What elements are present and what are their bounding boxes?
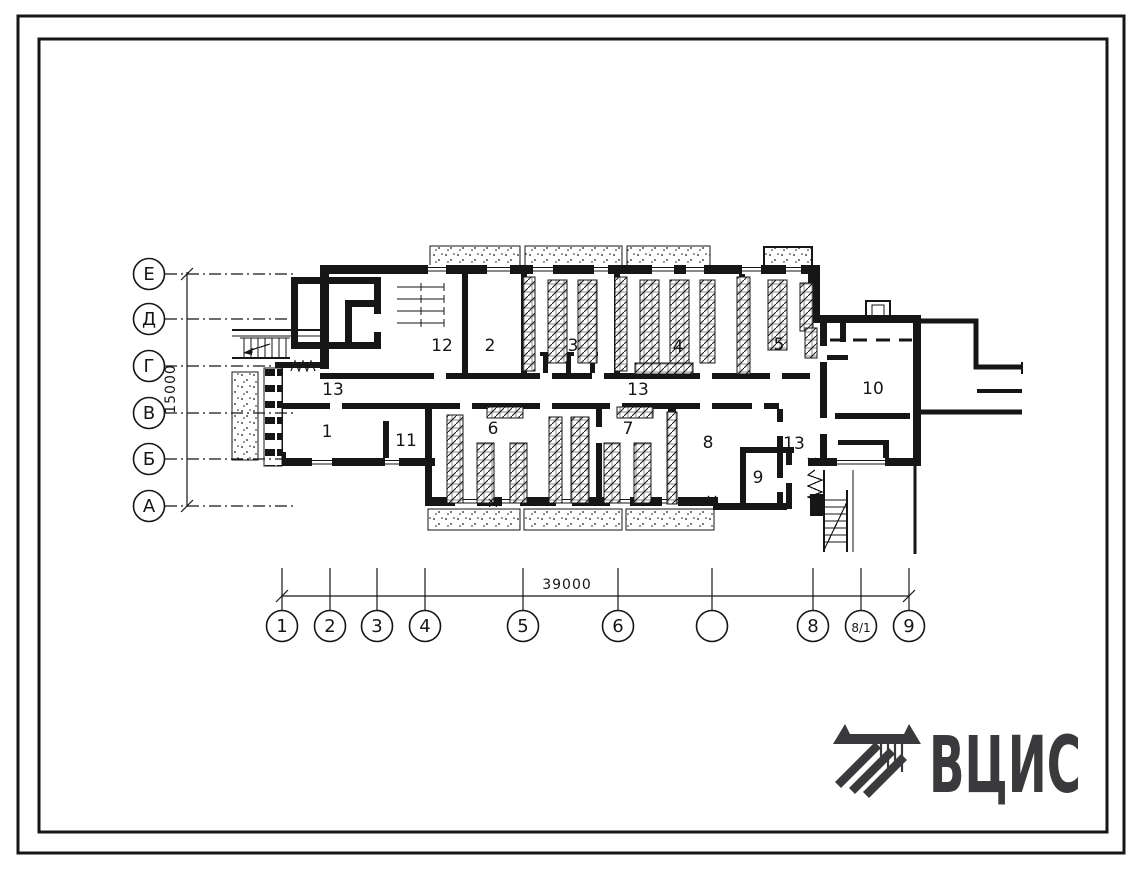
door-opening: [540, 373, 552, 379]
col-axis-grid: 39000 12345688/19: [267, 568, 925, 642]
door-opening: [700, 373, 712, 379]
col-axis-label: 8: [807, 616, 818, 637]
door-opening: [752, 403, 764, 409]
window: [385, 458, 399, 466]
building-plan: 123456789101112131313: [232, 246, 1022, 554]
rack: [571, 417, 589, 503]
rack: [523, 277, 535, 371]
window: [594, 265, 608, 274]
door-opening: [820, 346, 827, 362]
rack: [805, 328, 817, 358]
row-axis-label: Г: [144, 356, 155, 377]
door-opening: [770, 373, 782, 379]
room-label-3: 3: [568, 336, 579, 356]
wall: [345, 300, 378, 307]
wall: [425, 403, 432, 504]
wall: [596, 409, 602, 504]
rack: [640, 280, 659, 363]
col-axis-label: 6: [612, 616, 623, 637]
window: [487, 265, 510, 274]
row-axis-label: А: [143, 496, 156, 517]
wall: [810, 494, 825, 516]
loading-dock: [627, 246, 710, 266]
east-entrance: [920, 321, 1022, 412]
loading-dock: [428, 509, 520, 530]
window: [686, 265, 704, 274]
rack: [737, 277, 750, 374]
window: [837, 458, 885, 466]
rack: [549, 417, 562, 503]
rack: [477, 443, 494, 503]
window: [786, 265, 801, 274]
col-axis-label: 3: [371, 616, 382, 637]
door-opening: [596, 427, 602, 443]
loading-dock: [430, 246, 520, 266]
door-opening: [374, 314, 381, 332]
room-label-4: 4: [673, 337, 684, 357]
rack: [667, 412, 677, 504]
door-opening: [540, 403, 552, 409]
rack: [510, 443, 527, 503]
row-axis-label: Е: [143, 264, 154, 285]
room-label-11: 11: [395, 431, 417, 451]
row-axis-label: Б: [143, 449, 155, 470]
door-opening: [592, 373, 604, 379]
rack: [617, 407, 653, 418]
wall: [275, 458, 435, 466]
wall: [345, 300, 352, 349]
room-label-1: 1: [322, 422, 333, 442]
room-label-13: 13: [783, 434, 805, 454]
door-opening: [777, 478, 783, 492]
wall: [543, 354, 548, 376]
col-axis-circle: [697, 611, 728, 642]
room-label-12: 12: [431, 336, 453, 356]
wall: [913, 315, 921, 466]
pipe-risers: [397, 283, 444, 327]
door-opening: [460, 403, 472, 409]
row-axis-label: Д: [142, 309, 156, 330]
door-opening: [330, 403, 342, 409]
loading-dock: [525, 246, 622, 266]
room-label-10: 10: [862, 379, 884, 399]
rack: [447, 415, 463, 503]
wall: [820, 323, 827, 458]
wall: [786, 483, 792, 509]
wall: [462, 274, 468, 374]
rack: [634, 443, 651, 503]
wall: [740, 447, 746, 509]
window: [742, 265, 761, 274]
room-label-7: 7: [623, 419, 634, 439]
col-axis-label: 8/1: [851, 621, 870, 635]
row-dim-label: 15000: [163, 364, 179, 414]
vcis-logo: ВЦИС: [833, 721, 1081, 811]
rack: [578, 280, 597, 363]
col-axis-label: 2: [324, 616, 335, 637]
rack: [604, 443, 620, 503]
rack: [635, 363, 693, 374]
rack: [800, 283, 813, 331]
window: [428, 265, 446, 274]
col-axis-label: 1: [276, 616, 287, 637]
door-opening: [820, 418, 827, 434]
wall: [291, 342, 381, 349]
window: [533, 265, 553, 274]
floor-plan-svg: 123456789101112131313 15000 ЕДГВБА 39000…: [0, 0, 1139, 869]
window: [652, 265, 674, 274]
door-opening: [700, 403, 712, 409]
chimney: [866, 301, 890, 317]
room-label-13: 13: [322, 380, 344, 400]
wall: [291, 277, 298, 349]
door-opening: [434, 373, 446, 379]
window: [312, 458, 332, 466]
room-label-13: 13: [627, 380, 649, 400]
entrance-porch-left: [232, 330, 320, 466]
rack: [548, 280, 567, 363]
door-opening: [383, 409, 389, 421]
wall: [374, 277, 381, 349]
door-opening: [777, 422, 783, 436]
col-axis-label: 4: [419, 616, 430, 637]
vcis-logo-icon: [833, 724, 921, 798]
wall: [291, 277, 381, 284]
vcis-logo-text: ВЦИС: [929, 721, 1081, 811]
loading-dock: [524, 509, 622, 530]
staircase-right: [808, 466, 915, 554]
row-axis-label: В: [143, 403, 155, 424]
wall: [838, 440, 887, 445]
room-label-9: 9: [753, 468, 764, 488]
rack: [700, 280, 715, 363]
room-label-5: 5: [774, 335, 785, 355]
wall: [713, 503, 787, 510]
wall: [835, 413, 910, 419]
col-axis-label: 5: [517, 616, 528, 637]
drawing-sheet: 123456789101112131313 15000 ЕДГВБА 39000…: [0, 0, 1139, 869]
rack: [615, 277, 627, 371]
rack: [487, 407, 523, 418]
room-label-6: 6: [488, 419, 499, 439]
col-axis-label: 9: [903, 616, 914, 637]
loading-dock: [764, 247, 812, 267]
room-label-2: 2: [485, 336, 496, 356]
room-label-8: 8: [703, 433, 714, 453]
col-dim-label: 39000: [542, 577, 592, 593]
loading-dock: [626, 509, 714, 530]
